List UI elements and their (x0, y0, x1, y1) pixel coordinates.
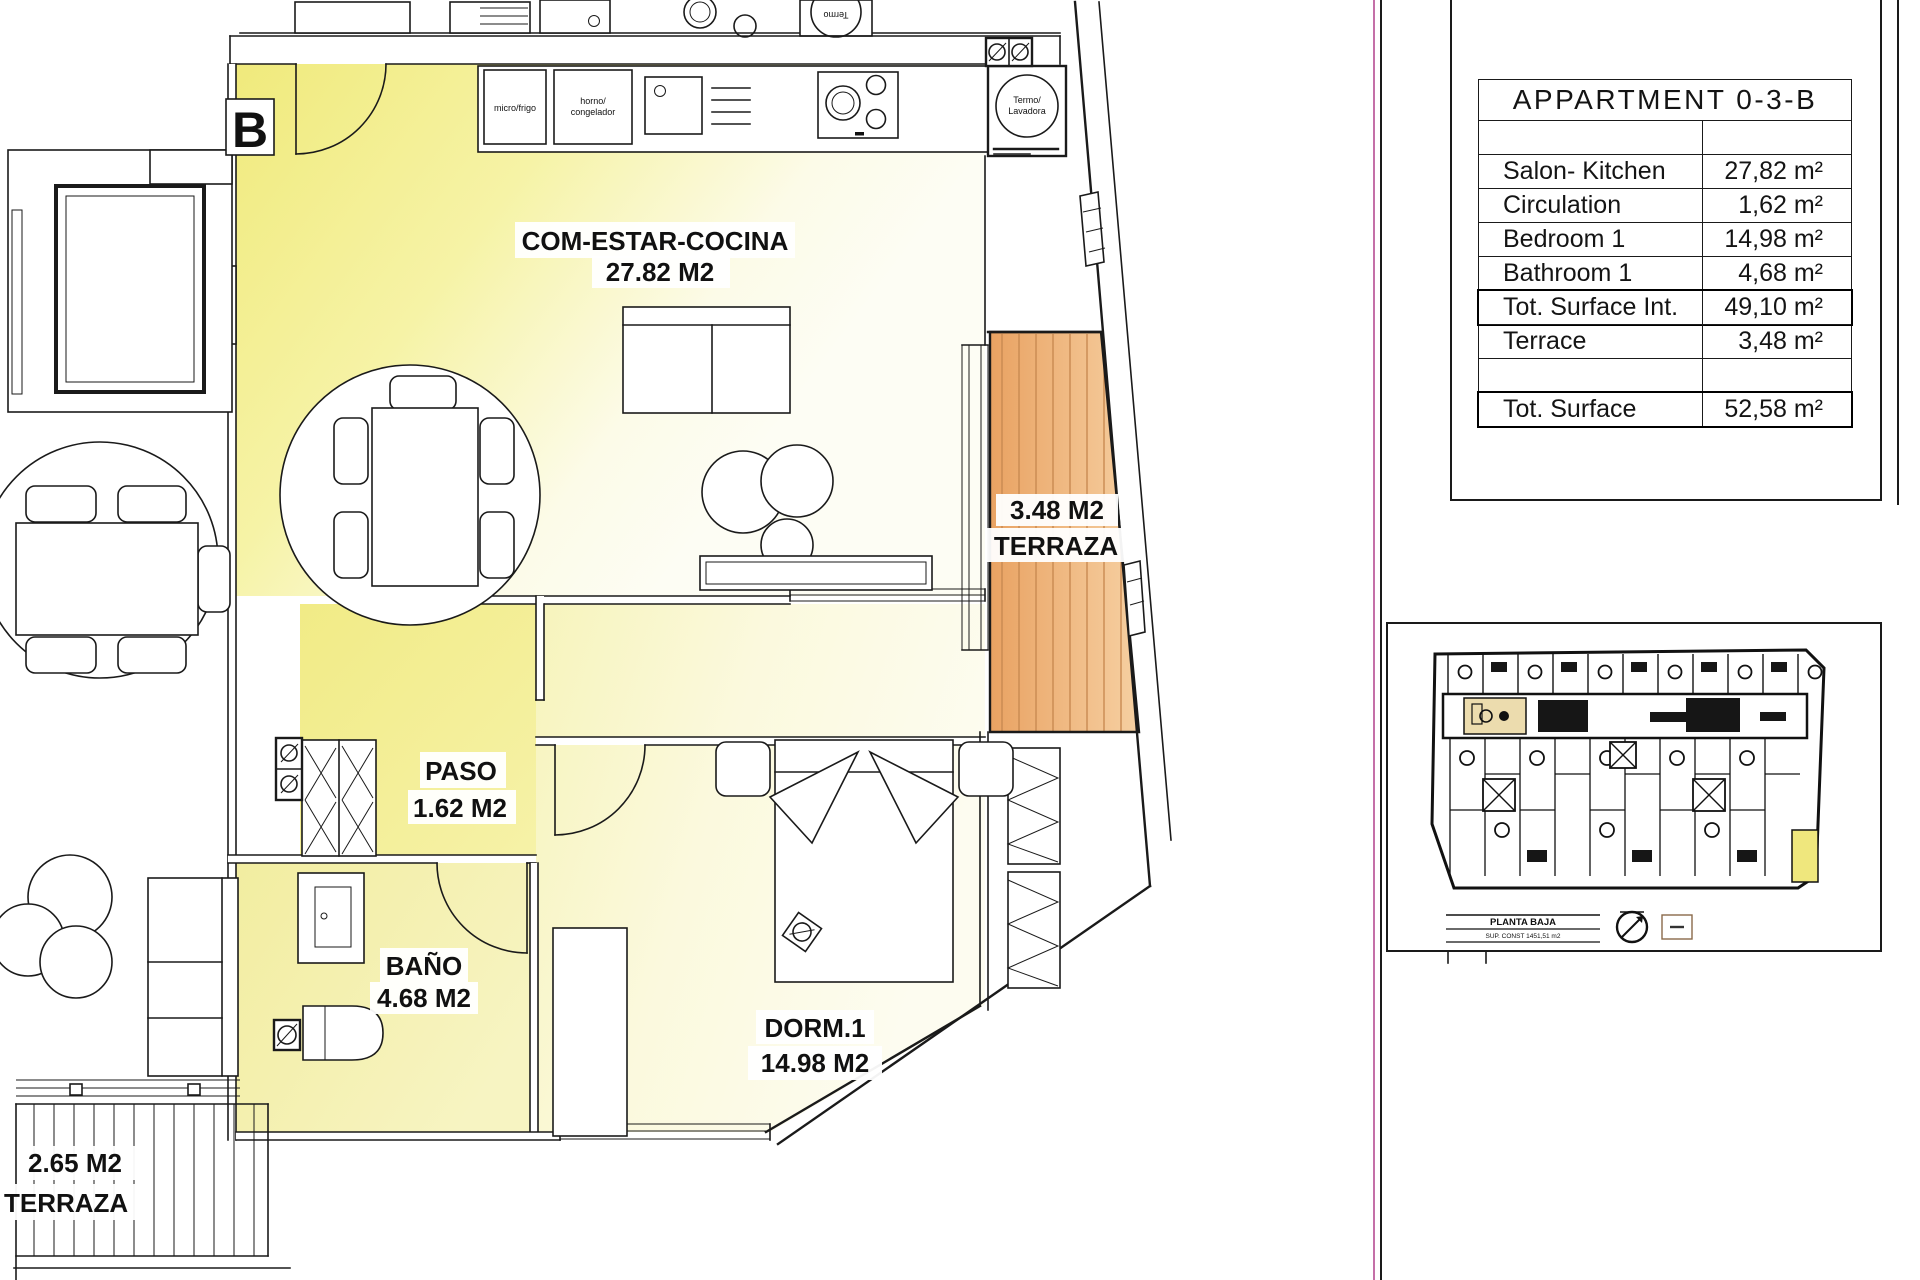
table-row: Bedroom 1 14,98 m² (1479, 222, 1851, 256)
bath-label: BAÑO (386, 951, 463, 981)
row-label: Tot. Surface Int. (1479, 291, 1702, 324)
neighbor-sink (540, 0, 610, 33)
oven-label-2: congelador (571, 107, 616, 117)
neighbor-cabinet (295, 2, 410, 33)
paso-area: 1.62 M2 (413, 793, 507, 823)
dining-chair (334, 418, 368, 484)
table-row: Circulation 1,62 m² (1479, 188, 1851, 222)
bath-area: 4.68 M2 (377, 983, 471, 1013)
table-row: Salon- Kitchen 27,82 m² (1479, 154, 1851, 188)
walls-top (230, 36, 1060, 64)
table-row: Bathroom 1 4,68 m² (1479, 256, 1851, 290)
neighbor-kitchen-strip: Termo (240, 0, 1060, 37)
row-label: Bedroom 1 (1479, 223, 1702, 256)
tv-cabinet (700, 556, 932, 590)
legend-title: PLANTA BAJA (1490, 917, 1556, 928)
living-room-area: 27.82 M2 (606, 257, 714, 287)
fridge-microwave-label: micro/frigo (494, 103, 536, 113)
neighbor-terrace-area: 2.65 M2 (28, 1148, 122, 1178)
dining-set (280, 365, 540, 625)
neighbor-terrace-label: TERRAZA (4, 1188, 128, 1218)
row-value: 4,68 m² (1702, 257, 1851, 290)
living-room-label: COM-ESTAR-COCINA (522, 226, 789, 256)
row-value: 1,62 m² (1702, 189, 1851, 222)
hall-closet (302, 740, 376, 856)
kitchen: micro/frigo horno/ congelador (478, 66, 1066, 156)
frame-line-right (1897, 0, 1899, 505)
bathroom-sink (298, 873, 364, 963)
neighbor-window-band (16, 1080, 240, 1096)
key-plan-drawing: PLANTA BAJA SUP. CONST 1451,51 m2 (1388, 624, 1880, 950)
water-heater-washer: Termo/ Lavadora (988, 66, 1066, 156)
row-label: Bathroom 1 (1479, 257, 1702, 290)
floorplan-sheet: Termo micro/frigo horno/ congelador (0, 0, 1920, 1280)
neighbor-sofa (148, 878, 238, 1076)
row-value: 14,98 m² (1702, 223, 1851, 256)
terrace-label: TERRAZA (994, 531, 1118, 561)
nightstand (716, 742, 770, 796)
row-label: Circulation (1479, 189, 1702, 222)
highlighted-unit-yellow (1792, 830, 1818, 882)
table-row-total-surface: Tot. Surface 52,58 m² (1479, 392, 1851, 426)
facade-window (1080, 192, 1105, 266)
neighbor-dining-set (0, 442, 230, 678)
legend-subtitle: SUP. CONST 1451,51 m2 (1486, 933, 1561, 940)
bedroom-area: 14.98 M2 (761, 1048, 869, 1078)
dining-chair (334, 512, 368, 578)
area-table-title: APPARTMENT 0-3-B (1479, 80, 1851, 120)
table-row (1479, 120, 1851, 154)
neighbor-hob (684, 0, 756, 37)
row-label: Tot. Surface (1479, 393, 1702, 426)
row-value: 52,58 m² (1702, 393, 1851, 426)
key-plan-legend: PLANTA BAJA SUP. CONST 1451,51 m2 (1446, 915, 1600, 942)
frame-line-black (1380, 0, 1382, 1280)
dining-table (372, 408, 478, 586)
vent-shaft-icon (986, 38, 1032, 66)
legend-box-icon (1662, 915, 1692, 939)
wardrobe (553, 928, 627, 1136)
key-plan-panel: PLANTA BAJA SUP. CONST 1451,51 m2 (1386, 622, 1882, 952)
unit-block (1538, 700, 1588, 732)
dining-chair (480, 512, 514, 578)
row-value: 49,10 m² (1702, 291, 1851, 324)
row-label: Terrace (1479, 325, 1702, 358)
table-row: Terrace 3,48 m² (1479, 324, 1851, 358)
nightstand (959, 742, 1013, 796)
sofa (623, 307, 790, 413)
vent-shaft-icon (274, 1020, 300, 1050)
terrace-area: 3.48 M2 (1010, 495, 1104, 525)
row-label (1479, 359, 1702, 392)
termo-label-1: Termo/ (1013, 95, 1041, 105)
oven-label-1: horno/ (580, 96, 606, 106)
unit-block (1686, 698, 1740, 732)
row-value: 3,48 m² (1702, 325, 1851, 358)
vent-shaft-icon (276, 738, 302, 800)
paso-label: PASO (425, 756, 497, 786)
table-row (1479, 358, 1851, 392)
block-letter: B (232, 102, 268, 158)
row-value (1702, 121, 1851, 154)
row-value (1702, 359, 1851, 392)
kitchen-hob (818, 72, 898, 138)
neighbor-termo-label: Termo (823, 10, 848, 20)
dining-chair (480, 418, 514, 484)
row-value: 27,82 m² (1702, 155, 1851, 188)
neighbor-cabinet (450, 2, 530, 33)
termo-label-2: Lavadora (1008, 106, 1046, 116)
stair-elevator-core (8, 150, 232, 412)
table-row-total-interior: Tot. Surface Int. 49,10 m² (1479, 290, 1851, 324)
area-table-panel: APPARTMENT 0-3-B Salon- Kitchen 27,82 m²… (1450, 0, 1882, 501)
north-arrow-icon (1617, 912, 1647, 942)
toilet (303, 1006, 383, 1060)
neighbor-plants (0, 855, 112, 998)
row-label (1479, 121, 1702, 154)
unit-block (1760, 712, 1786, 721)
louvre-window-hatch (1008, 748, 1060, 988)
row-label: Salon- Kitchen (1479, 155, 1702, 188)
frame-line-magenta (1373, 0, 1375, 1280)
dining-chair (390, 376, 456, 410)
block-label: B (226, 99, 274, 158)
bedroom-label: DORM.1 (764, 1013, 865, 1043)
area-table: APPARTMENT 0-3-B Salon- Kitchen 27,82 m²… (1478, 79, 1852, 427)
